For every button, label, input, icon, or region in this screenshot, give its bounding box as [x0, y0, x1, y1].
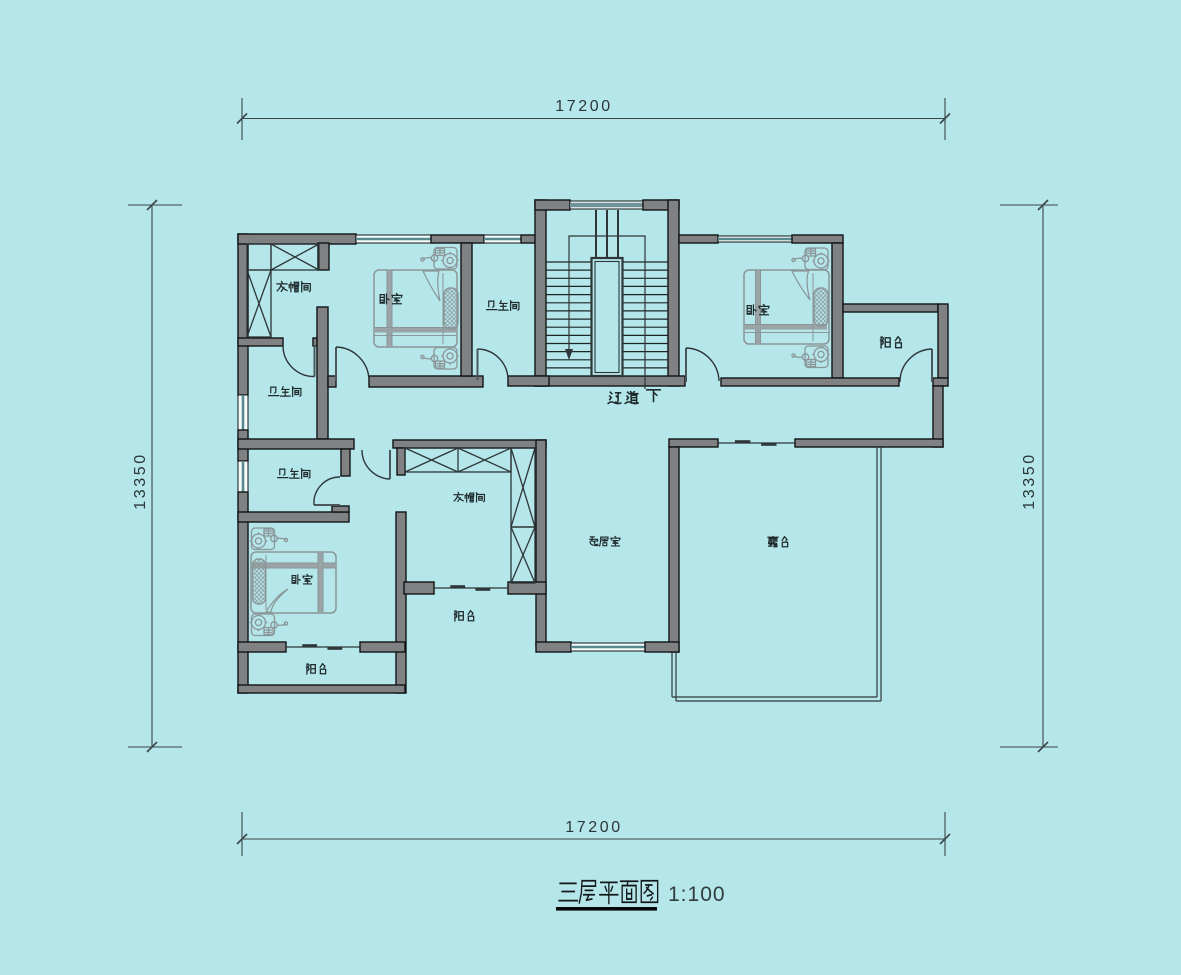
svg-text:17200: 17200 [555, 98, 613, 115]
svg-text:13350: 13350 [132, 452, 149, 510]
svg-text:1:100: 1:100 [668, 883, 726, 906]
svg-text:17200: 17200 [565, 819, 623, 836]
svg-text:13350: 13350 [1021, 452, 1038, 510]
